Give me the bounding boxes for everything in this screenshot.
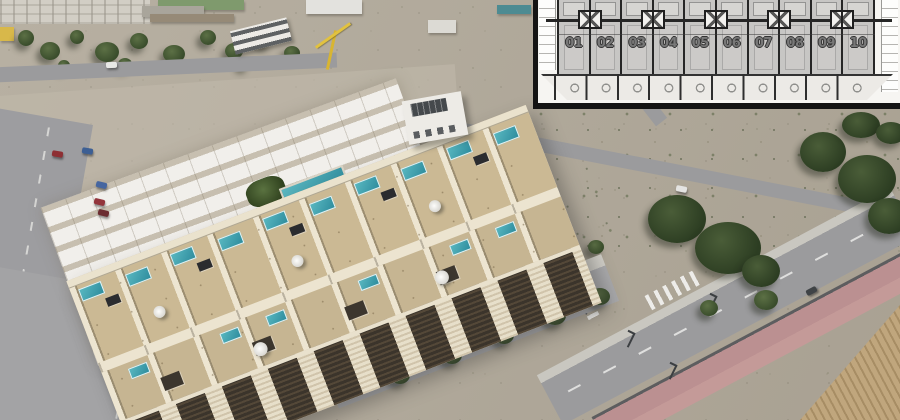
- tree: [18, 30, 34, 46]
- brown-building-row: [150, 14, 234, 22]
- unit-number: 04: [654, 36, 684, 51]
- rooftop-pool: [262, 210, 289, 231]
- tree: [742, 255, 780, 287]
- teal-roof-building: [497, 5, 531, 14]
- pergola: [160, 371, 184, 391]
- tree: [95, 42, 119, 62]
- stairs-icon: [641, 10, 665, 29]
- unit-number: 10: [843, 36, 873, 51]
- rooftop-pool: [170, 246, 197, 267]
- rooftop-pool: [217, 231, 244, 252]
- site-plan-overlay: 01 02 03 04 05 06 07 08 09 10: [533, 0, 900, 109]
- stairs-icon: [704, 10, 728, 29]
- stairs-icon: [830, 10, 854, 29]
- tree: [588, 240, 604, 254]
- tree: [200, 30, 216, 45]
- unit-number: 05: [685, 36, 715, 51]
- tree: [700, 300, 718, 316]
- unit-number: 07: [749, 36, 779, 51]
- stairs-icon: [578, 10, 602, 29]
- tree: [130, 33, 148, 49]
- aerial-photo: 01 02 03 04 05 06 07 08 09 10: [0, 0, 900, 420]
- roof-access-box: [381, 188, 397, 201]
- tree: [40, 42, 60, 60]
- townhouse-row: [230, 17, 292, 54]
- unit-number: 06: [717, 36, 747, 51]
- terrace-pool: [358, 274, 381, 291]
- unit-number: 01: [559, 36, 589, 51]
- unit-number: 09: [812, 36, 842, 51]
- white-building: [306, 0, 362, 14]
- rooftop-pool: [309, 196, 336, 217]
- terrace-pool: [449, 239, 472, 256]
- roof-access-box: [105, 293, 121, 306]
- unit-number: 08: [780, 36, 810, 51]
- roof-access-box: [289, 223, 305, 236]
- plan-facade-line: [557, 34, 875, 35]
- terrace-pool: [128, 362, 151, 379]
- tree: [754, 290, 778, 310]
- umbrella-icon: [427, 198, 443, 214]
- umbrella-icon: [152, 304, 168, 320]
- white-building: [428, 20, 456, 33]
- tree: [842, 112, 880, 138]
- terrace-pool: [265, 309, 288, 326]
- unit-number: 02: [591, 36, 621, 51]
- pergola: [344, 300, 368, 320]
- tree: [70, 30, 84, 44]
- roof-access-box: [197, 258, 213, 271]
- rooftop-pool: [446, 140, 473, 161]
- plan-sidewalk-left: [539, 0, 556, 70]
- tree: [800, 132, 846, 172]
- umbrella-icon: [290, 253, 306, 269]
- terrace-pool: [495, 221, 518, 238]
- rooftop-pool: [354, 175, 381, 196]
- rooftop-pool: [125, 266, 152, 287]
- tree: [838, 155, 896, 203]
- rooftop-pool: [400, 160, 427, 181]
- village-buildings: [0, 0, 150, 24]
- terrace-pool: [219, 327, 242, 344]
- rooftop-pool: [78, 281, 105, 302]
- tree: [876, 122, 900, 144]
- rooftop-pool: [493, 125, 520, 146]
- stairs-icon: [767, 10, 791, 29]
- roof-access-box: [473, 152, 489, 165]
- unit-number: 03: [622, 36, 652, 51]
- car: [106, 62, 117, 69]
- plan-terrace-dividers: [554, 74, 844, 100]
- yellow-building: [0, 27, 14, 41]
